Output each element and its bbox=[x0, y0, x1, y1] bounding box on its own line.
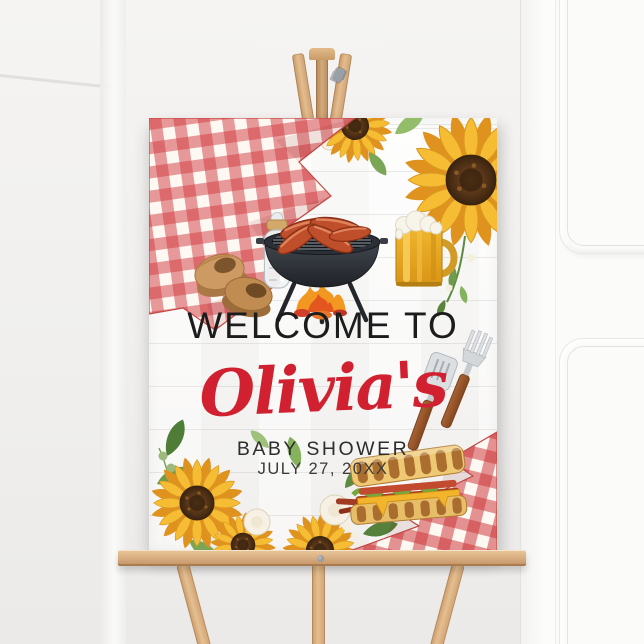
easel-apex bbox=[309, 48, 335, 60]
easel-tray bbox=[118, 550, 526, 566]
wall-casing-edge bbox=[100, 0, 126, 644]
easel-center-leg bbox=[312, 564, 325, 644]
name-script-heading: Olivia's bbox=[149, 334, 497, 445]
scene: WELCOME TO Olivia's BABY SHOWER JULY 27,… bbox=[0, 0, 644, 644]
event-date: JULY 27, 20XX bbox=[149, 460, 497, 479]
event-subheading: BABY SHOWER bbox=[149, 438, 497, 460]
door-stile bbox=[521, 0, 556, 644]
easel-back-leg-top bbox=[316, 50, 328, 122]
welcome-sign-poster: WELCOME TO Olivia's BABY SHOWER JULY 27,… bbox=[149, 118, 497, 552]
door-lower-panel bbox=[559, 338, 644, 644]
white-paneled-door bbox=[520, 0, 644, 644]
sign-text-block: WELCOME TO Olivia's BABY SHOWER JULY 27,… bbox=[149, 118, 497, 552]
easel-tray-bolt bbox=[317, 555, 324, 562]
door-upper-panel bbox=[559, 0, 644, 254]
